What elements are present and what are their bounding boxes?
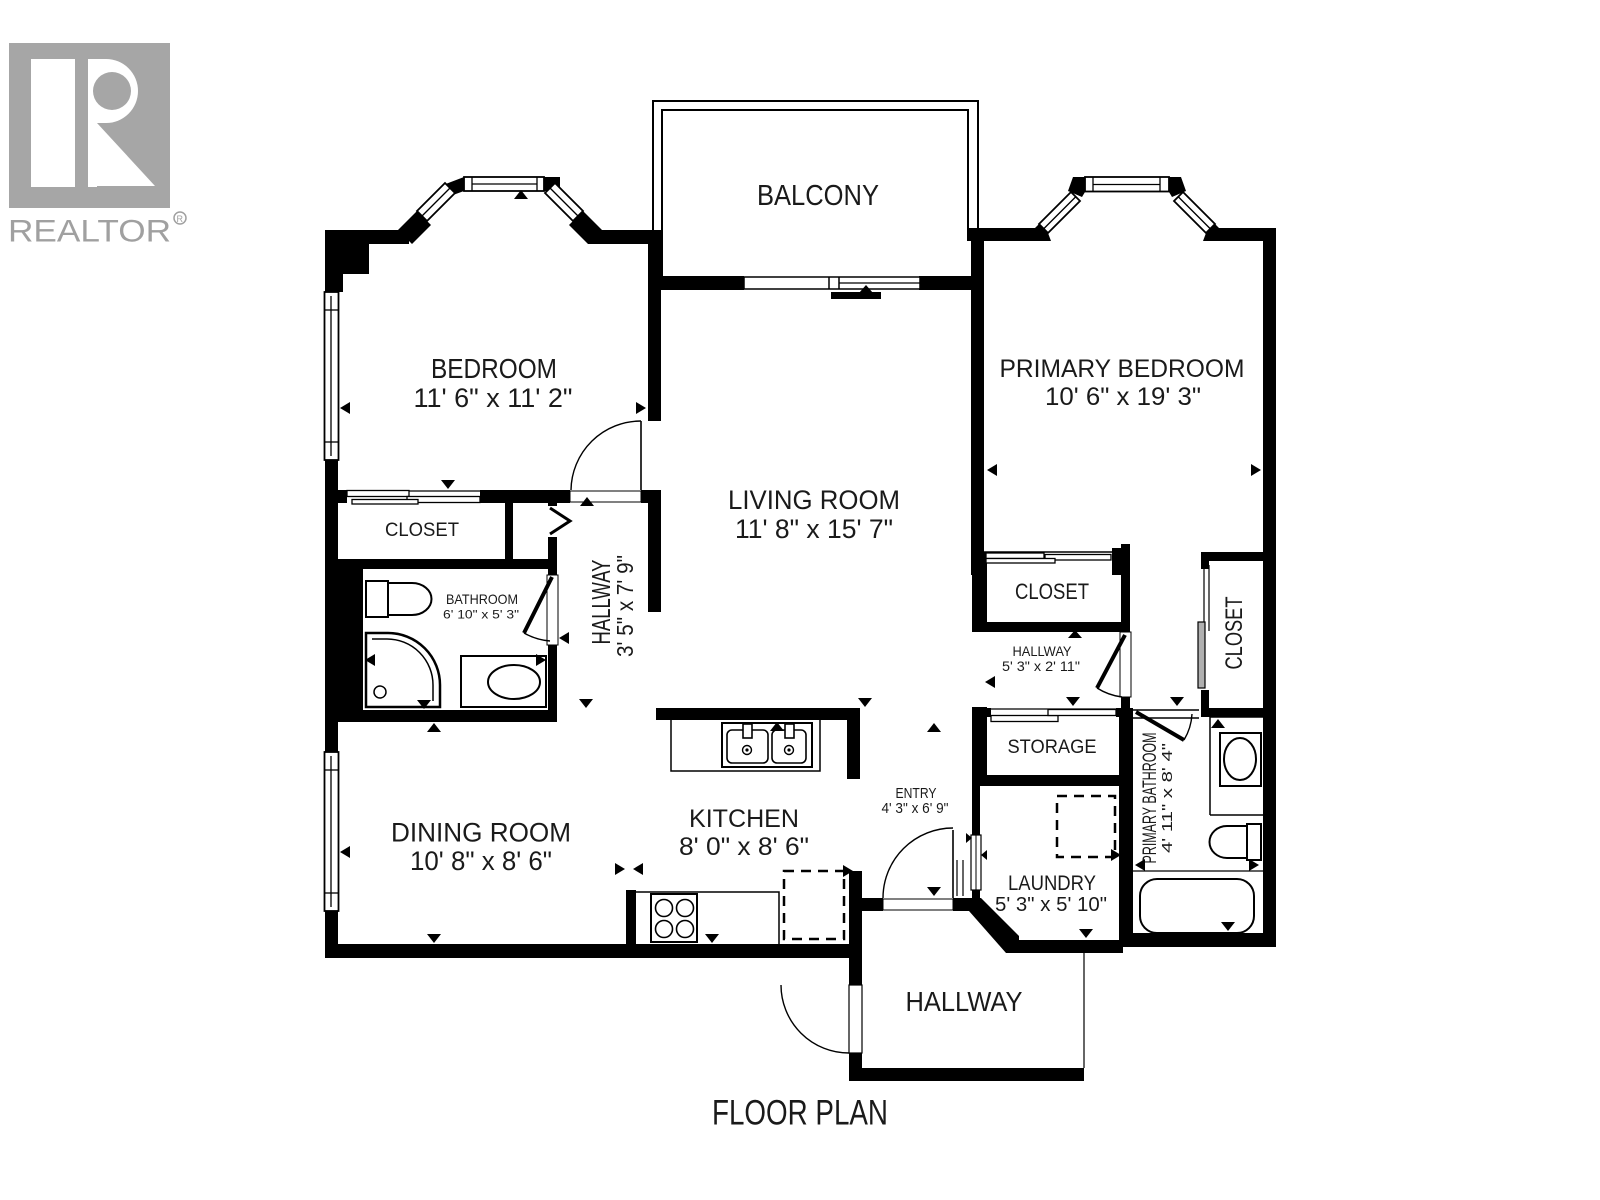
svg-text:8' 0" x 8' 6": 8' 0" x 8' 6" (679, 833, 809, 861)
svg-text:11' 8" x 15' 7": 11' 8" x 15' 7" (735, 514, 893, 544)
svg-text:4' 3" x 6' 9": 4' 3" x 6' 9" (882, 800, 949, 817)
svg-text:11' 6" x 11' 2": 11' 6" x 11' 2" (414, 383, 573, 413)
svg-text:BATHROOM: BATHROOM (446, 591, 518, 607)
svg-text:DINING ROOM: DINING ROOM (391, 818, 571, 848)
svg-text:6' 10" x 5' 3": 6' 10" x 5' 3" (443, 610, 519, 622)
svg-text:FLOOR PLAN: FLOOR PLAN (712, 1094, 888, 1133)
svg-text:KITCHEN: KITCHEN (689, 805, 799, 833)
svg-text:PRIMARY BATHROOM: PRIMARY BATHROOM (1140, 733, 1161, 864)
svg-text:CLOSET: CLOSET (1221, 596, 1248, 669)
svg-text:HALLWAY: HALLWAY (906, 986, 1023, 1017)
svg-text:BEDROOM: BEDROOM (431, 353, 557, 384)
svg-text:LAUNDRY: LAUNDRY (1008, 871, 1096, 895)
svg-text:CLOSET: CLOSET (385, 520, 459, 541)
svg-text:4' 11" x 8' 4": 4' 11" x 8' 4" (1159, 743, 1176, 853)
svg-text:10' 8" x 8' 6": 10' 8" x 8' 6" (410, 846, 552, 876)
svg-text:STORAGE: STORAGE (1008, 737, 1097, 758)
svg-text:R: R (177, 214, 184, 224)
svg-text:PRIMARY BEDROOM: PRIMARY BEDROOM (1000, 355, 1245, 383)
svg-text:HALLWAY: HALLWAY (1013, 643, 1073, 659)
svg-text:5' 3" x 2' 11": 5' 3" x 2' 11" (1002, 658, 1080, 674)
svg-text:3' 5" x 7' 9": 3' 5" x 7' 9" (612, 555, 638, 657)
svg-text:BALCONY: BALCONY (757, 180, 879, 212)
svg-text:CLOSET: CLOSET (1015, 579, 1089, 604)
svg-text:LIVING ROOM: LIVING ROOM (728, 485, 900, 515)
svg-text:5' 3" x 5' 10": 5' 3" x 5' 10" (995, 893, 1107, 916)
svg-text:10' 6" x 19' 3": 10' 6" x 19' 3" (1045, 383, 1201, 411)
svg-text:REALTOR: REALTOR (8, 213, 171, 249)
